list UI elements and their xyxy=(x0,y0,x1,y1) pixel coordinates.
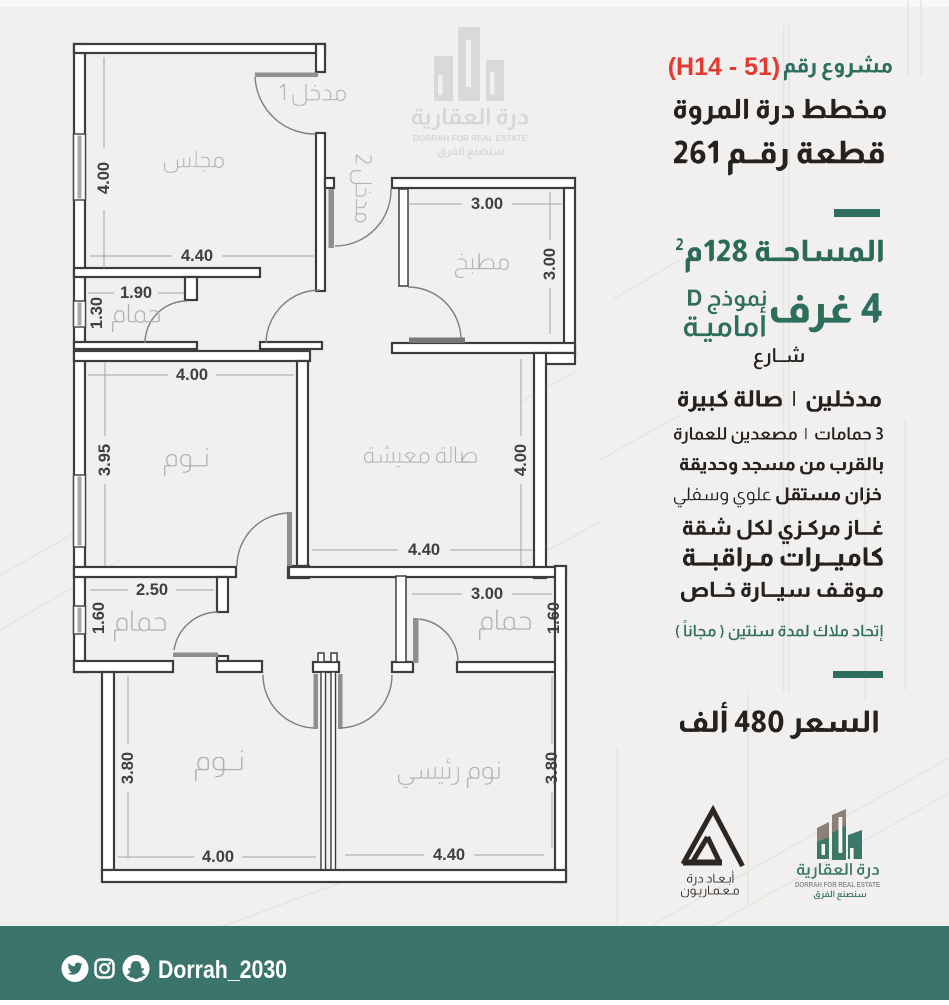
svg-text:1.90: 1.90 xyxy=(120,284,152,302)
svg-text:DORRAH FOR REAL ESTATE: DORRAH FOR REAL ESTATE xyxy=(413,134,528,143)
svg-text:1.60: 1.60 xyxy=(545,602,563,634)
svg-text:4.40: 4.40 xyxy=(408,541,440,559)
svg-text:3.95: 3.95 xyxy=(96,444,114,476)
svg-text:4.00: 4.00 xyxy=(202,848,234,866)
svg-text:DORRAH FOR REAL ESTATE: DORRAH FOR REAL ESTATE xyxy=(795,880,880,889)
svg-text:3.00: 3.00 xyxy=(541,248,559,280)
svg-text:3.00: 3.00 xyxy=(471,195,503,213)
svg-text:3.00: 3.00 xyxy=(471,585,503,603)
svg-text:4.40: 4.40 xyxy=(181,247,213,265)
svg-text:4.00: 4.00 xyxy=(176,366,208,384)
svg-text:1.30: 1.30 xyxy=(88,297,106,329)
svg-text:4.00: 4.00 xyxy=(512,444,530,476)
svg-text:3.80: 3.80 xyxy=(543,752,561,784)
svg-text:4.00: 4.00 xyxy=(95,162,113,194)
svg-text:(H14 - 51): (H14 - 51) xyxy=(668,53,781,81)
svg-text:2.50: 2.50 xyxy=(136,581,168,599)
svg-text:1.60: 1.60 xyxy=(90,602,108,634)
svg-text:3.80: 3.80 xyxy=(119,752,137,784)
svg-text:Dorrah_2030: Dorrah_2030 xyxy=(158,956,287,984)
svg-text:4.40: 4.40 xyxy=(433,846,465,864)
